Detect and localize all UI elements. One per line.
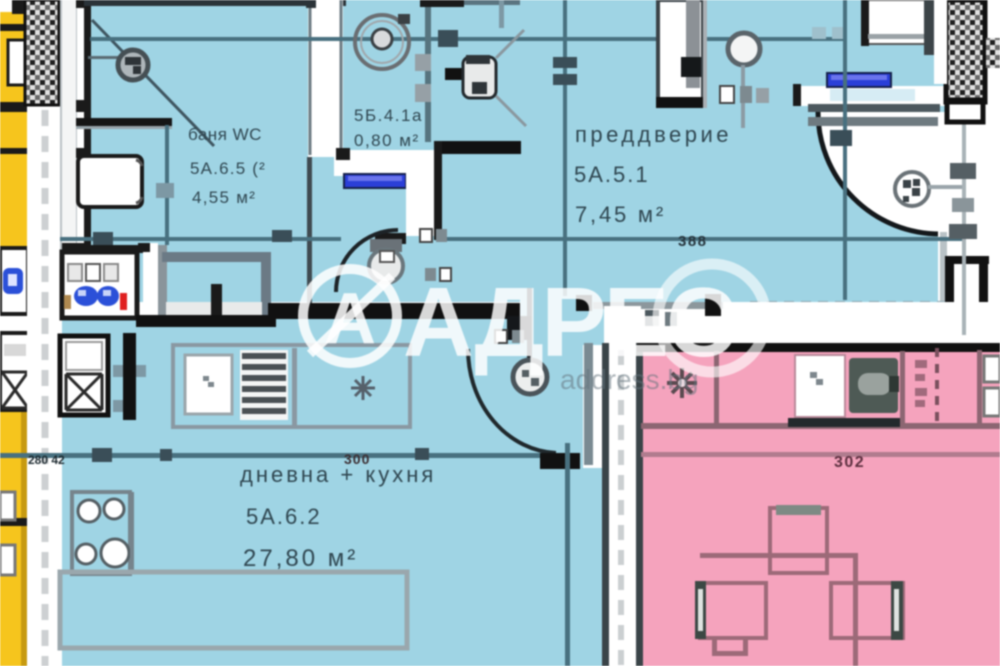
svg-text:5А.6.2: 5А.6.2 [246,504,322,529]
svg-text:5А.5.1: 5А.5.1 [574,162,650,187]
svg-text:5А.6.5 (²: 5А.6.5 (² [190,159,266,178]
svg-text:преддверие: преддверие [575,122,732,147]
svg-text:4,55 м²: 4,55 м² [192,188,256,207]
svg-text:А: А [324,279,376,359]
svg-text:302: 302 [834,454,865,471]
svg-text:280 42: 280 42 [28,453,65,467]
svg-text:баня WC: баня WC [188,125,262,144]
svg-text:5Б.4.1а: 5Б.4.1а [354,106,423,125]
svg-text:27,80 м²: 27,80 м² [243,545,358,572]
svg-text:388: 388 [678,233,708,250]
svg-text:address.bg: address.bg [560,364,699,395]
svg-text:0,80 м²: 0,80 м² [354,131,420,150]
svg-text:7,45 м²: 7,45 м² [575,202,666,227]
svg-text:дневна + кухня: дневна + кухня [240,462,436,487]
